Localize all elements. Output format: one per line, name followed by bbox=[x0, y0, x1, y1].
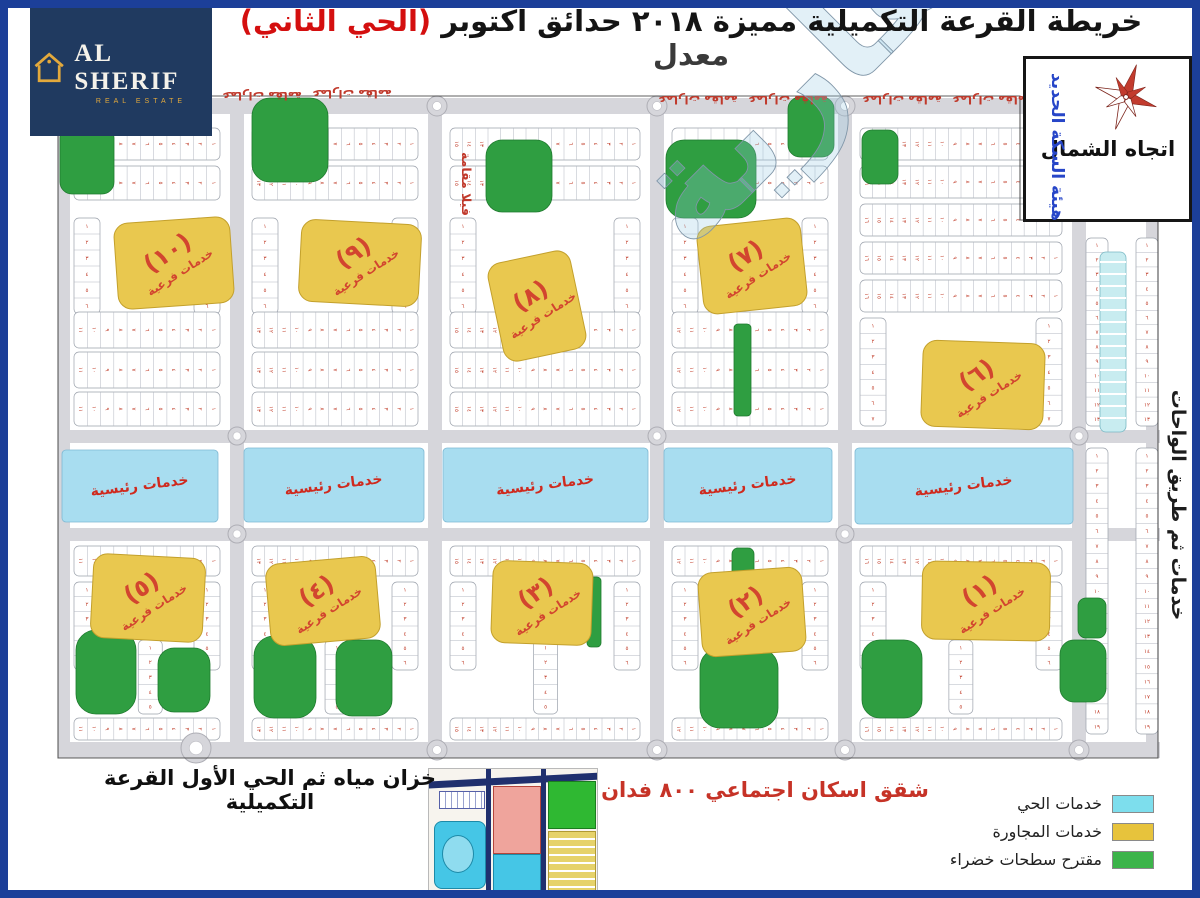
svg-text:٤: ٤ bbox=[779, 408, 785, 411]
svg-text:١٣: ١٣ bbox=[478, 367, 484, 373]
svg-text:٤: ٤ bbox=[959, 690, 962, 696]
svg-text:١: ١ bbox=[872, 324, 875, 330]
svg-text:٣: ٣ bbox=[626, 617, 629, 623]
svg-text:١١: ١١ bbox=[926, 293, 932, 299]
svg-text:٥: ٥ bbox=[1002, 295, 1008, 298]
svg-text:٦: ٦ bbox=[404, 661, 407, 667]
svg-text:١٥: ١٥ bbox=[1144, 664, 1150, 670]
svg-text:١: ١ bbox=[210, 143, 216, 146]
svg-text:٤: ٤ bbox=[170, 728, 176, 731]
svg-text:٤: ٤ bbox=[370, 408, 376, 411]
svg-text:٨: ٨ bbox=[727, 369, 733, 372]
svg-text:٩: ٩ bbox=[529, 728, 535, 731]
svg-text:٦: ٦ bbox=[462, 661, 465, 667]
svg-text:٨: ٨ bbox=[964, 295, 970, 298]
svg-text:٤: ٤ bbox=[1014, 295, 1020, 298]
svg-text:٨: ٨ bbox=[727, 408, 733, 411]
svg-text:٦: ٦ bbox=[753, 408, 759, 411]
svg-text:٦: ٦ bbox=[684, 304, 687, 310]
svg-text:١٥: ١٥ bbox=[875, 726, 881, 732]
svg-text:٧: ٧ bbox=[554, 369, 560, 372]
svg-text:٢: ٢ bbox=[86, 240, 89, 246]
svg-text:١١: ١١ bbox=[280, 327, 286, 333]
svg-text:١١: ١١ bbox=[688, 367, 694, 373]
svg-text:١: ١ bbox=[462, 224, 465, 230]
svg-text:٥: ٥ bbox=[86, 288, 89, 294]
legend-item: خدمات الحي bbox=[950, 794, 1154, 813]
svg-text:١: ١ bbox=[818, 329, 824, 332]
svg-text:١: ١ bbox=[630, 560, 636, 563]
svg-text:٦: ٦ bbox=[144, 369, 150, 372]
svg-text:١٥: ١٥ bbox=[875, 255, 881, 261]
svg-text:عمارات مقامة: عمارات مقامة bbox=[952, 93, 1032, 107]
svg-text:٤: ٤ bbox=[1014, 728, 1020, 731]
svg-text:٦: ٦ bbox=[989, 295, 995, 298]
svg-text:٩: ٩ bbox=[1146, 574, 1149, 580]
svg-text:١٠: ١٠ bbox=[516, 726, 522, 732]
svg-text:٩: ٩ bbox=[104, 728, 110, 731]
svg-text:٧: ٧ bbox=[130, 182, 136, 185]
inset-area-services-cyan bbox=[493, 854, 541, 892]
svg-text:١٤: ١٤ bbox=[466, 726, 472, 732]
legend-item: مقترح سطحات خضراء bbox=[950, 850, 1154, 869]
svg-text:٣: ٣ bbox=[383, 329, 389, 332]
svg-text:١٣: ١٣ bbox=[255, 558, 261, 564]
svg-text:٦: ٦ bbox=[462, 304, 465, 310]
svg-text:١: ١ bbox=[818, 182, 824, 185]
svg-text:٦: ٦ bbox=[753, 369, 759, 372]
svg-text:١١: ١١ bbox=[77, 367, 83, 373]
svg-text:٢: ٢ bbox=[872, 339, 875, 345]
svg-text:٤: ٤ bbox=[1146, 499, 1149, 505]
svg-text:٢: ٢ bbox=[395, 408, 401, 411]
svg-text:٥: ٥ bbox=[157, 728, 163, 731]
svg-text:١: ١ bbox=[1096, 454, 1099, 460]
svg-text:٤: ٤ bbox=[1014, 181, 1020, 184]
svg-text:٥: ٥ bbox=[1002, 181, 1008, 184]
legend-swatch bbox=[1112, 823, 1154, 841]
svg-text:٥: ٥ bbox=[1096, 301, 1099, 307]
svg-text:٣: ٣ bbox=[1027, 295, 1033, 298]
svg-text:٢: ٢ bbox=[805, 329, 811, 332]
svg-text:٢: ٢ bbox=[814, 240, 817, 246]
svg-text:٨: ٨ bbox=[117, 182, 123, 185]
svg-text:١٠: ١٠ bbox=[1144, 373, 1150, 379]
svg-text:٢: ٢ bbox=[197, 182, 203, 185]
svg-text:١٥: ١٥ bbox=[453, 367, 459, 373]
svg-text:٧: ٧ bbox=[332, 143, 338, 146]
svg-text:١٣: ١٣ bbox=[1094, 417, 1100, 423]
svg-text:٥: ٥ bbox=[626, 646, 629, 652]
svg-text:٣: ٣ bbox=[183, 182, 189, 185]
svg-text:٤: ٤ bbox=[592, 329, 598, 332]
svg-text:١٠: ١٠ bbox=[293, 367, 299, 373]
svg-text:١: ١ bbox=[1146, 454, 1149, 460]
svg-text:٤: ٤ bbox=[370, 182, 376, 185]
svg-text:٦: ٦ bbox=[1146, 529, 1149, 535]
svg-text:١٣: ١٣ bbox=[901, 726, 907, 732]
svg-text:٢: ٢ bbox=[206, 602, 209, 608]
svg-text:١: ١ bbox=[408, 408, 414, 411]
svg-text:٦: ٦ bbox=[567, 728, 573, 731]
svg-text:١٠: ١٠ bbox=[1094, 589, 1100, 595]
svg-text:٢: ٢ bbox=[544, 660, 547, 666]
svg-text:٣: ٣ bbox=[605, 182, 611, 185]
svg-text:١٠: ١٠ bbox=[939, 217, 945, 223]
svg-text:١٦: ١٦ bbox=[863, 558, 869, 564]
svg-text:١: ١ bbox=[408, 369, 414, 372]
svg-text:٤: ٤ bbox=[592, 560, 598, 563]
svg-text:٥: ٥ bbox=[357, 728, 363, 731]
svg-text:٤: ٤ bbox=[1014, 143, 1020, 146]
svg-text:١٢: ١٢ bbox=[913, 558, 919, 564]
svg-text:٤: ٤ bbox=[684, 631, 687, 637]
svg-text:١٢: ١٢ bbox=[913, 217, 919, 223]
svg-text:٢: ٢ bbox=[1146, 469, 1149, 475]
svg-text:١٢: ١٢ bbox=[675, 726, 681, 732]
svg-text:٣: ٣ bbox=[626, 256, 629, 262]
svg-text:٤: ٤ bbox=[170, 143, 176, 146]
svg-text:١: ١ bbox=[818, 369, 824, 372]
svg-text:١٢: ١٢ bbox=[675, 558, 681, 564]
svg-text:١١: ١١ bbox=[280, 406, 286, 412]
svg-text:٦: ٦ bbox=[567, 143, 573, 146]
svg-text:٤: ٤ bbox=[779, 369, 785, 372]
svg-text:١٥: ١٥ bbox=[453, 141, 459, 147]
svg-text:٥: ٥ bbox=[626, 288, 629, 294]
svg-text:١٠: ١٠ bbox=[293, 726, 299, 732]
svg-text:١٠: ١٠ bbox=[939, 255, 945, 261]
svg-text:٣: ٣ bbox=[684, 256, 687, 262]
svg-text:٢: ٢ bbox=[1048, 339, 1051, 345]
master-plan-map: ١٢٣٤٥٦٧٨٩١٠١١١٢٣٤٥٦٧٨٩١٠١١١٢٣٤٥٦١٢٣٤٥٦١٢… bbox=[8, 8, 1192, 890]
svg-text:١٣: ١٣ bbox=[901, 293, 907, 299]
svg-text:٢: ٢ bbox=[395, 329, 401, 332]
svg-text:٨: ٨ bbox=[1146, 344, 1149, 350]
svg-text:٣: ٣ bbox=[1146, 484, 1149, 490]
svg-text:٦: ٦ bbox=[144, 143, 150, 146]
house-icon bbox=[30, 48, 68, 88]
svg-text:١: ١ bbox=[210, 182, 216, 185]
svg-text:١٢: ١٢ bbox=[491, 726, 497, 732]
svg-text:٤: ٤ bbox=[544, 690, 547, 696]
svg-text:٨: ٨ bbox=[964, 181, 970, 184]
svg-text:٨: ٨ bbox=[542, 408, 548, 411]
main-service-strips: خدمات رئيسيةخدمات رئيسيةخدمات رئيسيةخدما… bbox=[62, 448, 1073, 524]
svg-text:٧: ٧ bbox=[976, 143, 982, 146]
svg-text:١٠: ١٠ bbox=[701, 327, 707, 333]
svg-text:٥: ٥ bbox=[157, 369, 163, 372]
svg-text:٦: ٦ bbox=[206, 304, 209, 310]
svg-text:٦: ٦ bbox=[1096, 529, 1099, 535]
svg-text:٨: ٨ bbox=[319, 408, 325, 411]
svg-text:١٣: ١٣ bbox=[901, 179, 907, 185]
svg-text:٣: ٣ bbox=[86, 256, 89, 262]
svg-text:٤: ٤ bbox=[264, 631, 267, 637]
svg-text:١: ١ bbox=[86, 224, 89, 230]
svg-text:٣: ٣ bbox=[605, 560, 611, 563]
svg-text:٤: ٤ bbox=[370, 329, 376, 332]
svg-text:٢: ٢ bbox=[1096, 469, 1099, 475]
svg-text:٦: ٦ bbox=[144, 329, 150, 332]
svg-text:١٨: ١٨ bbox=[1144, 709, 1150, 715]
svg-text:١٣: ١٣ bbox=[255, 726, 261, 732]
svg-text:٨: ٨ bbox=[1096, 559, 1099, 565]
svg-text:١: ١ bbox=[210, 329, 216, 332]
svg-text:٦: ٦ bbox=[989, 257, 995, 260]
svg-text:٧: ٧ bbox=[554, 408, 560, 411]
inset-road-vertical-2 bbox=[541, 769, 546, 893]
svg-text:١٣: ١٣ bbox=[478, 726, 484, 732]
svg-text:١٠: ١٠ bbox=[701, 367, 707, 373]
svg-text:١٢: ١٢ bbox=[268, 327, 274, 333]
svg-text:١١: ١١ bbox=[688, 406, 694, 412]
svg-text:٦: ٦ bbox=[344, 329, 350, 332]
svg-text:١: ١ bbox=[1096, 243, 1099, 249]
svg-text:٧: ٧ bbox=[976, 728, 982, 731]
svg-text:٤: ٤ bbox=[462, 272, 465, 278]
svg-text:٥: ٥ bbox=[872, 385, 875, 391]
svg-text:١٥: ١٥ bbox=[453, 558, 459, 564]
svg-text:٢: ٢ bbox=[1096, 258, 1099, 264]
svg-text:٥: ٥ bbox=[264, 288, 267, 294]
svg-text:٢: ٢ bbox=[805, 560, 811, 563]
svg-text:٤: ٤ bbox=[370, 728, 376, 731]
svg-text:٧: ٧ bbox=[554, 728, 560, 731]
svg-text:٧: ٧ bbox=[554, 143, 560, 146]
svg-text:١: ١ bbox=[408, 728, 414, 731]
svg-text:٥: ٥ bbox=[1002, 257, 1008, 260]
svg-text:٥: ٥ bbox=[1002, 143, 1008, 146]
svg-text:٤: ٤ bbox=[170, 329, 176, 332]
legend-item: خدمات المجاورة bbox=[950, 822, 1154, 841]
svg-text:٧: ٧ bbox=[332, 329, 338, 332]
svg-text:٩: ٩ bbox=[1146, 359, 1149, 365]
svg-text:١١: ١١ bbox=[926, 255, 932, 261]
svg-text:٧: ٧ bbox=[130, 408, 136, 411]
svg-text:٨: ٨ bbox=[964, 257, 970, 260]
svg-text:٢: ٢ bbox=[618, 329, 624, 332]
svg-text:١: ١ bbox=[630, 728, 636, 731]
svg-text:٥: ٥ bbox=[544, 705, 547, 711]
svg-text:٣: ٣ bbox=[814, 256, 817, 262]
svg-text:١٠: ١٠ bbox=[939, 179, 945, 185]
svg-text:١١: ١١ bbox=[504, 726, 510, 732]
svg-text:٣: ٣ bbox=[1146, 272, 1149, 278]
svg-text:٣: ٣ bbox=[792, 728, 798, 731]
svg-text:٦: ٦ bbox=[626, 304, 629, 310]
svg-text:١٣: ١٣ bbox=[901, 217, 907, 223]
svg-text:١٥: ١٥ bbox=[453, 327, 459, 333]
svg-text:٤: ٤ bbox=[872, 370, 875, 376]
svg-text:١٣: ١٣ bbox=[901, 141, 907, 147]
svg-text:١٠: ١٠ bbox=[939, 726, 945, 732]
svg-text:٢: ٢ bbox=[149, 660, 152, 666]
svg-text:٢: ٢ bbox=[395, 143, 401, 146]
svg-text:٤: ٤ bbox=[592, 143, 598, 146]
svg-text:٩: ٩ bbox=[529, 408, 535, 411]
svg-text:٦: ٦ bbox=[144, 728, 150, 731]
svg-text:١٣: ١٣ bbox=[478, 558, 484, 564]
svg-text:٦: ٦ bbox=[989, 219, 995, 222]
svg-text:٨: ٨ bbox=[542, 369, 548, 372]
railway-authority-label: هيئة السكة الحديد bbox=[1043, 42, 1067, 252]
svg-text:١١: ١١ bbox=[1094, 388, 1100, 394]
svg-text:٩: ٩ bbox=[951, 143, 957, 146]
svg-text:٥: ٥ bbox=[1002, 728, 1008, 731]
svg-text:٤: ٤ bbox=[1096, 287, 1099, 293]
svg-text:١٤: ١٤ bbox=[888, 255, 894, 261]
inset-area-yellow-strips bbox=[548, 831, 596, 891]
svg-text:٥: ٥ bbox=[580, 408, 586, 411]
svg-text:٢: ٢ bbox=[264, 602, 267, 608]
svg-text:٧: ٧ bbox=[1146, 544, 1149, 550]
svg-text:٥: ٥ bbox=[766, 369, 772, 372]
svg-text:٤: ٤ bbox=[592, 369, 598, 372]
svg-text:٣: ٣ bbox=[605, 329, 611, 332]
svg-text:١٤: ١٤ bbox=[466, 327, 472, 333]
svg-text:٢: ٢ bbox=[197, 329, 203, 332]
svg-text:٥: ٥ bbox=[357, 329, 363, 332]
svg-text:٣: ٣ bbox=[206, 617, 209, 623]
svg-text:٦: ٦ bbox=[567, 408, 573, 411]
svg-text:١١: ١١ bbox=[926, 726, 932, 732]
svg-text:٥: ٥ bbox=[1048, 646, 1051, 652]
svg-text:٦: ٦ bbox=[814, 661, 817, 667]
svg-text:٦: ٦ bbox=[1048, 401, 1051, 407]
svg-text:١٤: ١٤ bbox=[888, 726, 894, 732]
svg-text:٢: ٢ bbox=[805, 728, 811, 731]
svg-text:١٢: ١٢ bbox=[268, 367, 274, 373]
svg-text:٧: ٧ bbox=[332, 408, 338, 411]
svg-text:٥: ٥ bbox=[462, 646, 465, 652]
svg-text:٣: ٣ bbox=[383, 143, 389, 146]
svg-text:٣: ٣ bbox=[544, 675, 547, 681]
svg-text:٧: ٧ bbox=[1146, 330, 1149, 336]
svg-text:٥: ٥ bbox=[462, 288, 465, 294]
svg-text:٦: ٦ bbox=[872, 401, 875, 407]
svg-text:٣: ٣ bbox=[383, 408, 389, 411]
svg-text:١٤: ١٤ bbox=[466, 406, 472, 412]
svg-text:٥: ٥ bbox=[357, 369, 363, 372]
svg-text:١: ١ bbox=[206, 587, 209, 593]
svg-text:٧: ٧ bbox=[976, 257, 982, 260]
svg-text:١٠: ١٠ bbox=[939, 293, 945, 299]
svg-text:١٧: ١٧ bbox=[1144, 694, 1150, 700]
svg-text:٣: ٣ bbox=[605, 728, 611, 731]
svg-text:١٩: ١٩ bbox=[1094, 724, 1100, 730]
svg-text:عمارات مقامة: عمارات مقامة bbox=[312, 87, 392, 101]
svg-text:٥: ٥ bbox=[404, 646, 407, 652]
svg-text:١١: ١١ bbox=[1144, 388, 1150, 394]
svg-text:٩: ٩ bbox=[951, 219, 957, 222]
svg-text:١١: ١١ bbox=[280, 726, 286, 732]
svg-text:٣: ٣ bbox=[383, 560, 389, 563]
svg-text:٤: ٤ bbox=[872, 631, 875, 637]
svg-text:١٠: ١٠ bbox=[90, 726, 96, 732]
svg-text:٣: ٣ bbox=[183, 143, 189, 146]
svg-text:١٢: ١٢ bbox=[913, 726, 919, 732]
svg-text:٧: ٧ bbox=[332, 182, 338, 185]
inset-area-stadium bbox=[442, 835, 474, 873]
svg-text:١: ١ bbox=[626, 587, 629, 593]
svg-text:١١: ١١ bbox=[688, 558, 694, 564]
svg-text:٥: ٥ bbox=[1146, 301, 1149, 307]
svg-text:١١: ١١ bbox=[77, 406, 83, 412]
svg-text:١: ١ bbox=[149, 645, 152, 651]
svg-text:٣: ٣ bbox=[1027, 728, 1033, 731]
svg-text:٨: ٨ bbox=[319, 369, 325, 372]
svg-text:١٤: ١٤ bbox=[888, 293, 894, 299]
svg-text:١٢: ١٢ bbox=[913, 141, 919, 147]
svg-text:٨: ٨ bbox=[117, 408, 123, 411]
svg-text:١٢: ١٢ bbox=[1144, 619, 1150, 625]
svg-text:٦: ٦ bbox=[344, 369, 350, 372]
legend-swatch bbox=[1112, 851, 1154, 869]
svg-text:٥: ٥ bbox=[580, 369, 586, 372]
svg-text:٩: ٩ bbox=[714, 369, 720, 372]
svg-text:١٢: ١٢ bbox=[491, 406, 497, 412]
svg-text:٤: ٤ bbox=[779, 329, 785, 332]
svg-text:٨: ٨ bbox=[117, 728, 123, 731]
svg-text:٢: ٢ bbox=[618, 369, 624, 372]
svg-text:٩: ٩ bbox=[104, 329, 110, 332]
svg-text:١٠: ١٠ bbox=[90, 367, 96, 373]
svg-text:١: ١ bbox=[1048, 324, 1051, 330]
svg-text:١٣: ١٣ bbox=[255, 367, 261, 373]
svg-text:٣: ٣ bbox=[86, 617, 89, 623]
svg-text:٢: ٢ bbox=[395, 182, 401, 185]
page-title: خريطة القرعة التكميلية مميزة ٢٠١٨ حدائق … bbox=[216, 4, 1166, 72]
inset-area-green bbox=[548, 781, 596, 829]
svg-text:٦: ٦ bbox=[86, 304, 89, 310]
svg-text:٣: ٣ bbox=[183, 728, 189, 731]
title-district: (الحي الثاني) bbox=[240, 4, 431, 38]
svg-text:٨: ٨ bbox=[964, 143, 970, 146]
svg-text:٥: ٥ bbox=[959, 705, 962, 711]
svg-text:١٣: ١٣ bbox=[255, 406, 261, 412]
svg-text:٤: ٤ bbox=[592, 182, 598, 185]
svg-text:فيلا مقامة: فيلا مقامة bbox=[459, 152, 474, 216]
svg-text:٩: ٩ bbox=[529, 369, 535, 372]
svg-text:٦: ٦ bbox=[753, 329, 759, 332]
svg-text:٣: ٣ bbox=[183, 329, 189, 332]
svg-text:عمارات مقامة: عمارات مقامة bbox=[222, 89, 302, 103]
svg-text:١٢: ١٢ bbox=[491, 558, 497, 564]
svg-text:١: ١ bbox=[462, 587, 465, 593]
svg-text:٤: ٤ bbox=[170, 408, 176, 411]
svg-text:٣: ٣ bbox=[605, 408, 611, 411]
svg-text:١٥: ١٥ bbox=[875, 558, 881, 564]
svg-text:١٢: ١٢ bbox=[913, 179, 919, 185]
svg-text:٤: ٤ bbox=[264, 272, 267, 278]
svg-text:٤: ٤ bbox=[592, 728, 598, 731]
svg-text:١٣: ١٣ bbox=[255, 180, 261, 186]
svg-text:١: ١ bbox=[408, 329, 414, 332]
svg-text:١٣: ١٣ bbox=[901, 558, 907, 564]
svg-text:٣: ٣ bbox=[792, 369, 798, 372]
svg-text:٢: ٢ bbox=[618, 408, 624, 411]
svg-text:٣: ٣ bbox=[1096, 272, 1099, 278]
svg-text:٣: ٣ bbox=[1048, 355, 1051, 361]
svg-text:١٤: ١٤ bbox=[466, 141, 472, 147]
svg-text:٩: ٩ bbox=[306, 728, 312, 731]
svg-text:٨: ٨ bbox=[727, 329, 733, 332]
svg-text:٩: ٩ bbox=[951, 181, 957, 184]
svg-text:٦: ٦ bbox=[989, 728, 995, 731]
svg-text:٣: ٣ bbox=[605, 369, 611, 372]
svg-text:١: ١ bbox=[210, 369, 216, 372]
